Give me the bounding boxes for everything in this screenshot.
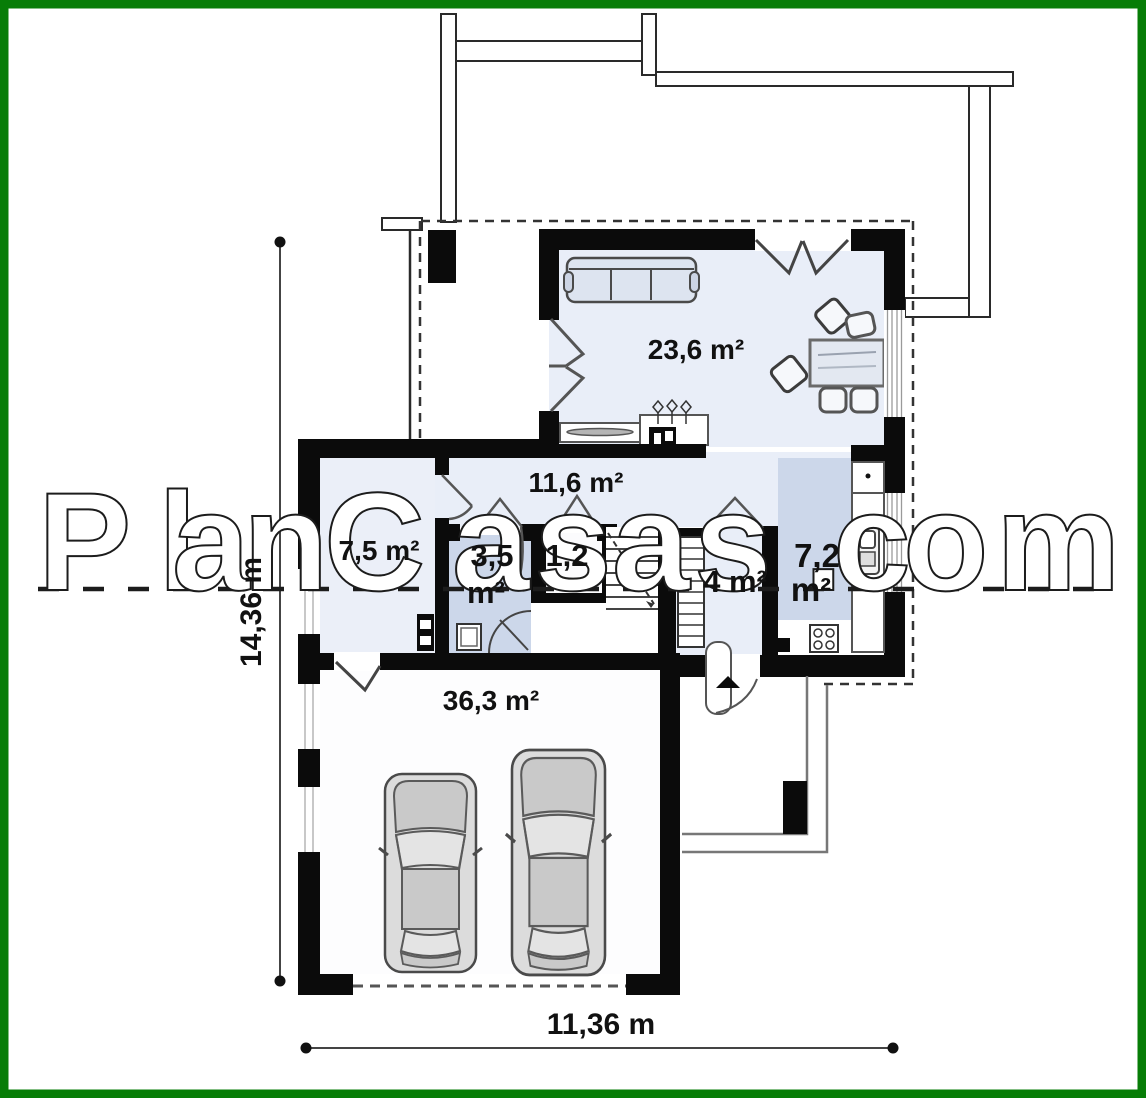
svg-text:3,5: 3,5 [470, 538, 513, 573]
svg-text:7,5 m²: 7,5 m² [339, 535, 420, 566]
svg-text:1,2: 1,2 [545, 538, 588, 573]
svg-text:36,3 m²: 36,3 m² [443, 685, 540, 716]
svg-text:11,6 m²: 11,6 m² [529, 467, 624, 498]
svg-text:23,6 m²: 23,6 m² [648, 334, 745, 365]
svg-text:7,2: 7,2 [794, 537, 840, 574]
svg-text:m²: m² [467, 575, 505, 610]
svg-text:m²: m² [791, 571, 831, 608]
svg-text:14,36 m: 14,36 m [235, 557, 268, 667]
svg-text:4 m²: 4 m² [703, 564, 767, 599]
svg-text:11,36 m: 11,36 m [547, 1008, 655, 1041]
